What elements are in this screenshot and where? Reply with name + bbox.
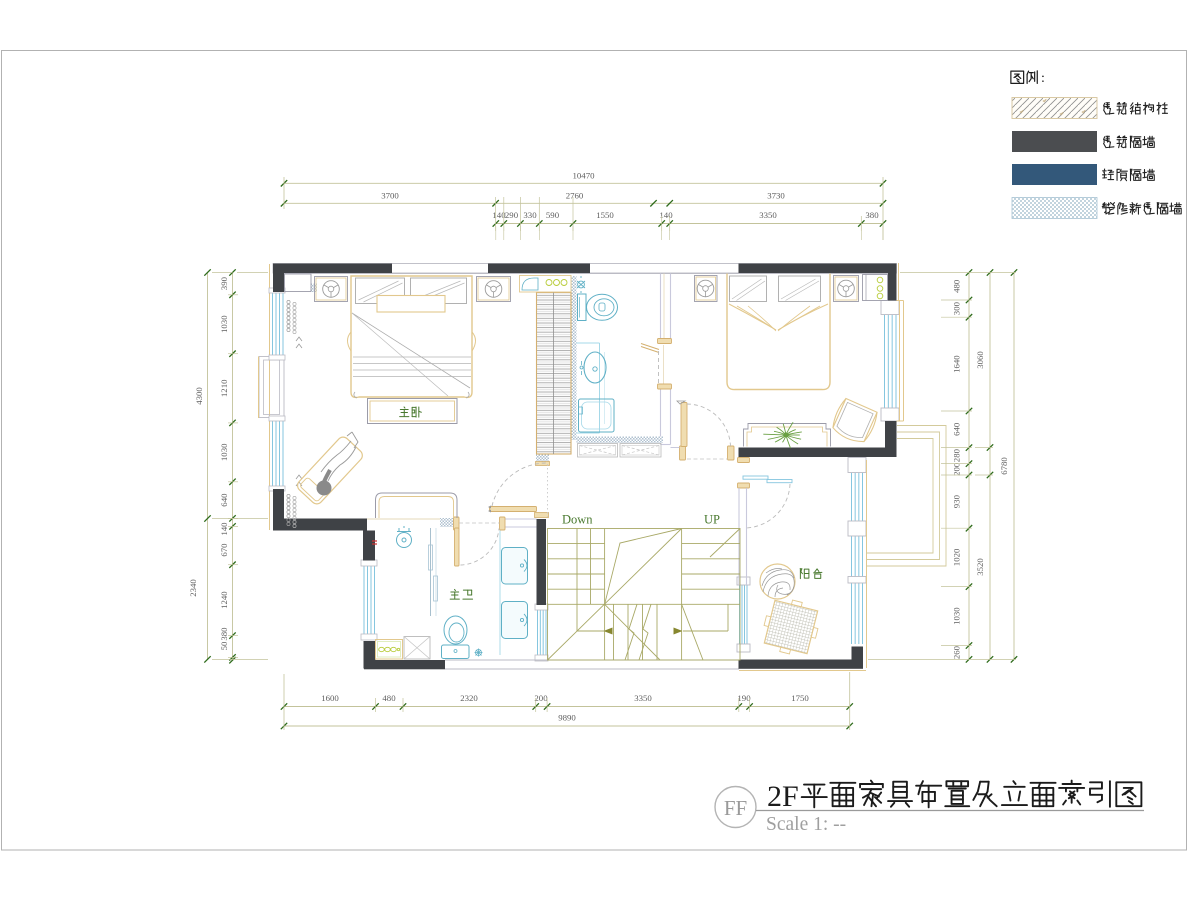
svg-text:2760: 2760 [566,191,584,201]
svg-text:380: 380 [219,627,229,641]
svg-text:Scale 1: --: Scale 1: -- [766,814,846,835]
svg-text:6780: 6780 [999,457,1009,475]
svg-text:330: 330 [523,210,537,220]
svg-text:1750: 1750 [791,693,809,703]
svg-text:3700: 3700 [381,191,399,201]
svg-text::: : [1041,71,1045,86]
svg-text:390: 390 [219,276,229,290]
svg-text:1600: 1600 [321,693,339,703]
svg-text:190: 190 [737,693,751,703]
svg-text:4300: 4300 [194,387,204,405]
svg-text:200: 200 [952,462,962,476]
svg-text:Down: Down [562,513,593,527]
svg-text:3350: 3350 [759,210,777,220]
svg-text:260: 260 [952,645,962,659]
svg-text:3730: 3730 [767,191,785,201]
svg-text:590: 590 [546,210,560,220]
svg-text:1030: 1030 [219,443,229,461]
svg-text:3060: 3060 [975,351,985,369]
svg-text:1020: 1020 [952,548,962,566]
svg-text:UP: UP [704,513,720,527]
svg-text:200: 200 [534,693,548,703]
svg-text:FF: FF [724,796,747,820]
svg-text:380: 380 [865,210,879,220]
svg-text:140: 140 [219,522,229,536]
svg-text:670: 670 [219,543,229,557]
svg-text:2340: 2340 [188,579,198,597]
svg-text:480: 480 [952,279,962,293]
svg-text:1640: 1640 [952,355,962,373]
svg-text:2320: 2320 [460,693,478,703]
svg-text:640: 640 [952,422,962,436]
svg-text:480: 480 [382,693,396,703]
svg-text:1210: 1210 [219,379,229,397]
svg-text:290: 290 [505,210,519,220]
svg-text:1550: 1550 [596,210,614,220]
svg-text:930: 930 [952,494,962,508]
svg-text:1240: 1240 [219,591,229,609]
svg-text:300: 300 [952,301,962,315]
svg-text:2F: 2F [767,780,799,813]
svg-text:1030: 1030 [952,607,962,625]
svg-text:9890: 9890 [558,713,576,723]
svg-text:50: 50 [219,641,229,650]
svg-text:3350: 3350 [634,693,652,703]
svg-text:640: 640 [219,493,229,507]
svg-text:1030: 1030 [219,315,229,333]
svg-text:3520: 3520 [975,558,985,576]
svg-text:10470: 10470 [573,171,596,181]
svg-text:280: 280 [952,448,962,462]
